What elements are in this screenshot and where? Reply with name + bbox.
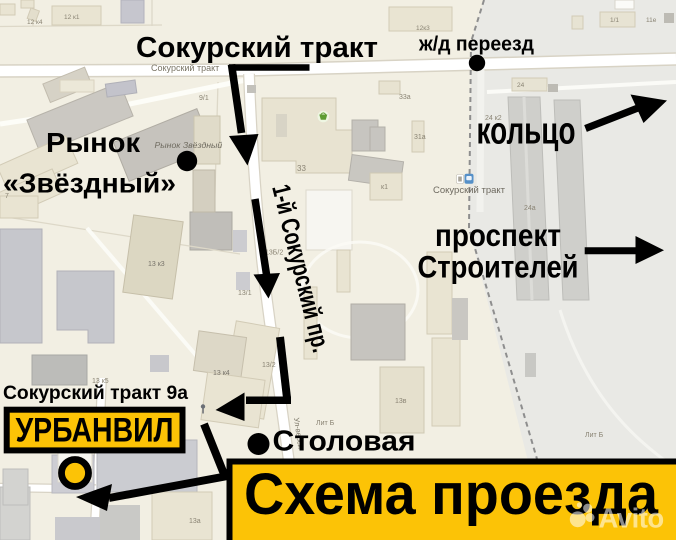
svg-text:12к3: 12к3 — [416, 25, 430, 32]
svg-text:УРБАНВИЛ: УРБАНВИЛ — [16, 412, 174, 450]
svg-text:13а: 13а — [189, 518, 201, 525]
svg-text:33а: 33а — [399, 94, 411, 101]
svg-text:13/1: 13/1 — [238, 290, 252, 297]
svg-text:31а: 31а — [414, 134, 426, 141]
svg-text:к1: к1 — [381, 184, 388, 191]
svg-text:12 к4: 12 к4 — [27, 19, 43, 26]
svg-text:Сокурский тракт 9а: Сокурский тракт 9а — [3, 383, 188, 404]
svg-text:13 к4: 13 к4 — [213, 370, 230, 377]
svg-text:13 к3: 13 к3 — [148, 261, 165, 268]
svg-text:12 к1: 12 к1 — [64, 14, 80, 21]
svg-text:Лит Б: Лит Б — [585, 432, 604, 439]
svg-text:Avito: Avito — [599, 503, 664, 534]
svg-text:1/1: 1/1 — [610, 17, 619, 24]
svg-text:Столовая: Столовая — [273, 426, 416, 458]
svg-text:Сокурский тракт: Сокурский тракт — [136, 32, 378, 64]
svg-text:кольцо: кольцо — [477, 111, 576, 153]
svg-text:24а: 24а — [524, 205, 536, 212]
svg-text:ж/д переезд: ж/д переезд — [418, 34, 534, 56]
svg-text:13/2: 13/2 — [262, 362, 276, 369]
svg-text:13Б/2: 13Б/2 — [265, 250, 283, 257]
svg-text:Сокурский тракт: Сокурский тракт — [151, 63, 219, 73]
svg-text:Строителей: Строителей — [418, 249, 579, 285]
svg-text:Схема проезда: Схема проезда — [244, 462, 659, 527]
svg-text:Рынок Звёздный: Рынок Звёздный — [155, 140, 223, 150]
svg-text:33: 33 — [297, 164, 306, 173]
svg-text:9/1: 9/1 — [199, 95, 209, 102]
svg-text:11е: 11е — [646, 17, 657, 24]
svg-text:24: 24 — [517, 82, 525, 89]
svg-text:«Звёздный»: «Звёздный» — [3, 168, 176, 199]
svg-text:Сокурский тракт: Сокурский тракт — [433, 185, 506, 196]
svg-text:Рынок: Рынок — [46, 127, 141, 158]
svg-text:13в: 13в — [395, 398, 407, 405]
